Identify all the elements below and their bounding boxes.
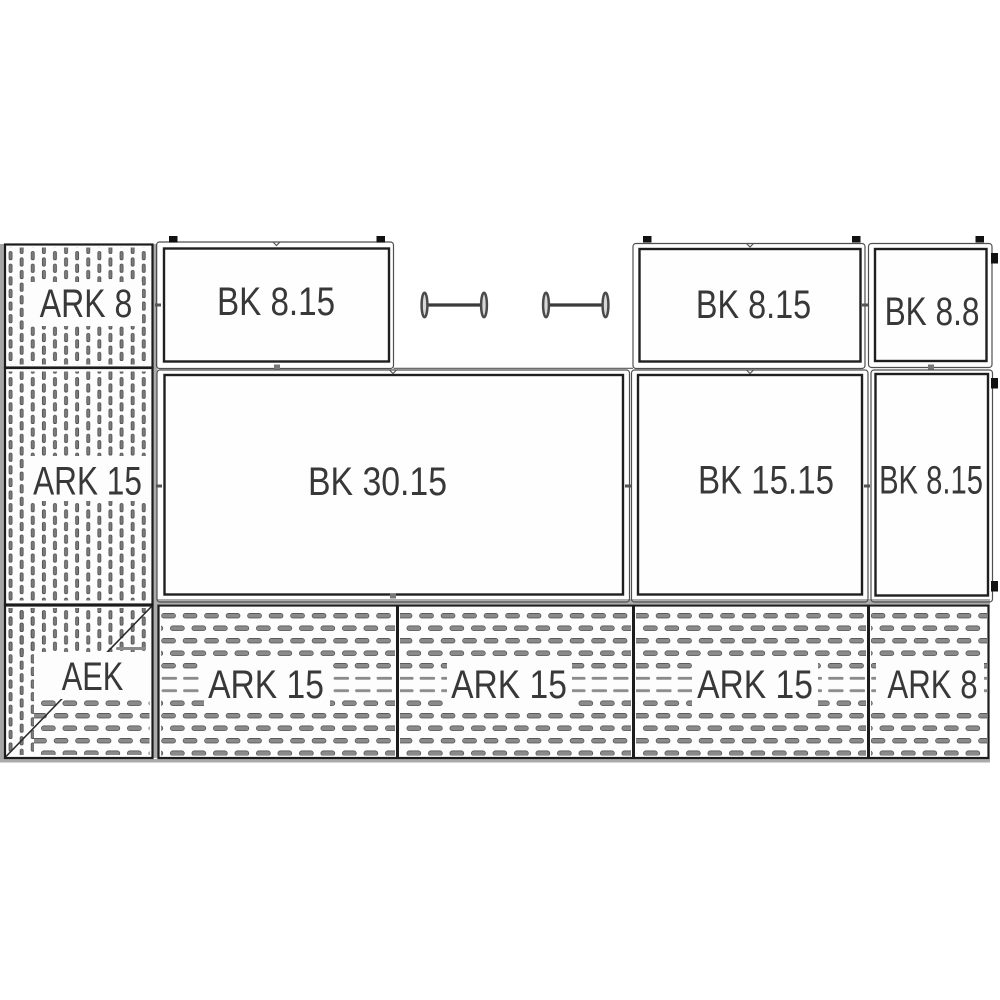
svg-text:BK 30.15: BK 30.15: [308, 458, 447, 503]
svg-text:ARK 8: ARK 8: [887, 662, 977, 707]
svg-text:ARK 15: ARK 15: [697, 662, 813, 706]
svg-text:BK 8.15: BK 8.15: [217, 279, 335, 324]
svg-text:BK 15.15: BK 15.15: [698, 458, 834, 503]
svg-text:ARK 8: ARK 8: [40, 281, 132, 326]
svg-text:BK 8.15: BK 8.15: [696, 282, 811, 327]
svg-text:ARK 15: ARK 15: [451, 662, 567, 706]
svg-text:ARK 15: ARK 15: [208, 662, 324, 706]
svg-text:BK 8.15: BK 8.15: [879, 458, 983, 503]
svg-text:AEK: AEK: [62, 654, 124, 699]
svg-text:ARK 15: ARK 15: [33, 458, 142, 503]
svg-text:BK 8.8: BK 8.8: [885, 288, 980, 333]
